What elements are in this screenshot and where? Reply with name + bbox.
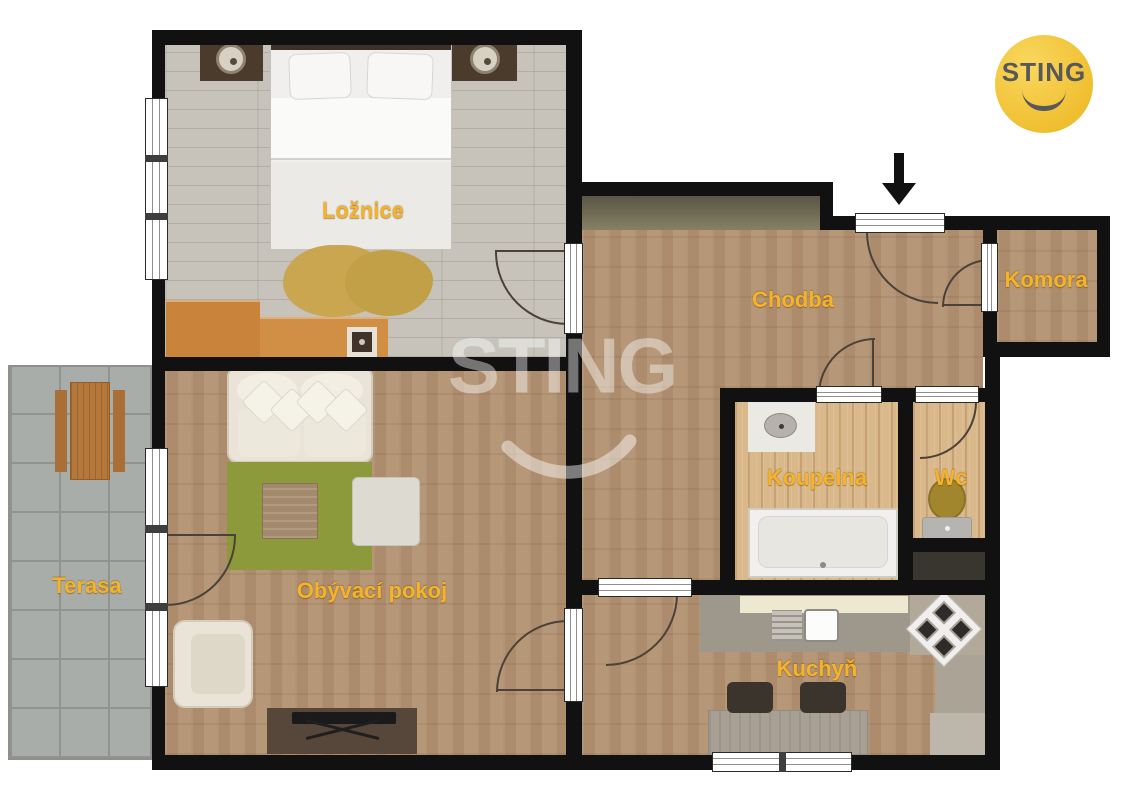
- drain: [820, 562, 826, 568]
- wall: [850, 755, 1000, 770]
- window-mullion: [145, 213, 168, 220]
- room-label-loznice: Ložnice: [322, 198, 404, 224]
- lamp-left: [216, 44, 246, 74]
- wall: [985, 342, 1000, 770]
- kitchen-sink: [804, 609, 839, 642]
- burner: [952, 621, 970, 639]
- wall: [720, 388, 735, 595]
- bathtub-inner: [758, 516, 888, 568]
- bed-pillow-left: [288, 52, 352, 100]
- hallway-wardrobe: [582, 196, 820, 230]
- window-mullion: [779, 752, 786, 772]
- bathroom-door-threshold: [816, 386, 882, 403]
- room-label-wc: Wc: [935, 465, 968, 491]
- door-leaf: [495, 250, 568, 252]
- window-mullion: [145, 525, 168, 533]
- utility-shaft: [910, 552, 985, 580]
- bed-pillow-right: [366, 52, 434, 100]
- kitchen-door-threshold: [598, 578, 692, 597]
- decor-frame: [347, 327, 377, 357]
- wall: [898, 538, 985, 552]
- lamp-center: [230, 58, 237, 65]
- window-mullion: [145, 603, 168, 611]
- bathtub: [748, 508, 898, 578]
- bedroom-window: [145, 98, 168, 280]
- dining-table: [708, 710, 868, 755]
- drain: [779, 424, 784, 429]
- armchair: [173, 620, 253, 708]
- wall: [690, 580, 1000, 595]
- burner: [935, 637, 953, 655]
- washbasin: [764, 413, 797, 438]
- wall: [152, 755, 715, 770]
- living-door-threshold: [564, 608, 583, 702]
- wall: [566, 182, 833, 196]
- room-label-chodba: Chodba: [752, 287, 834, 313]
- wall: [152, 30, 165, 100]
- sting-watermark: STING: [448, 321, 676, 412]
- entry-door-threshold: [855, 213, 945, 233]
- wall: [566, 30, 582, 245]
- sting-logo: STING: [995, 35, 1093, 133]
- room-label-terasa: Terasa: [52, 573, 121, 599]
- decor-frame-dot: [359, 339, 365, 345]
- wall: [820, 196, 833, 230]
- window-mullion: [145, 155, 168, 162]
- terrace-window-door: [145, 448, 168, 687]
- door-leaf: [166, 534, 236, 536]
- wall: [566, 580, 600, 595]
- chair: [800, 682, 846, 713]
- entrance-arrow-icon: [882, 183, 916, 205]
- entrance-arrow-icon: [894, 153, 904, 184]
- terrace-bench: [55, 390, 67, 472]
- burner: [918, 621, 936, 639]
- wall: [152, 30, 582, 45]
- sting-logo-text: STING: [1002, 57, 1086, 88]
- coffee-table: [262, 483, 318, 539]
- door-leaf: [496, 689, 568, 691]
- wall: [983, 342, 1110, 357]
- storage-door-threshold: [981, 243, 998, 312]
- terrace-table: [70, 382, 110, 480]
- wall: [833, 216, 857, 230]
- dresser: [166, 300, 260, 358]
- fridge: [930, 713, 985, 755]
- bed-duvet-fold: [271, 98, 451, 160]
- room-label-obyvaci-pokoj: Obývací pokoj: [297, 578, 447, 604]
- sink-drainer: [772, 610, 802, 641]
- wc-door-threshold: [915, 386, 979, 403]
- burner: [935, 604, 953, 622]
- lamp-center: [484, 58, 491, 65]
- wall: [1097, 216, 1110, 357]
- wall: [943, 216, 1110, 230]
- wall: [152, 685, 165, 760]
- terrace-bench: [113, 390, 125, 472]
- wall: [566, 700, 582, 757]
- watermark-smile-icon: [490, 425, 650, 495]
- room-label-komora: Komora: [1004, 267, 1087, 293]
- smile-icon: [1022, 90, 1066, 111]
- armchair-seat: [191, 634, 245, 694]
- chair: [727, 682, 773, 713]
- room-label-koupelna: Koupelna: [767, 465, 867, 491]
- floor-plan: STING STING Ložnice Chodba Komora Koupel…: [0, 0, 1130, 799]
- flush-button: [945, 526, 950, 531]
- wall: [152, 371, 165, 450]
- lamp-right: [470, 44, 500, 74]
- toilet-tank: [922, 517, 972, 539]
- ottoman: [352, 477, 420, 546]
- room-label-kuchyn: Kuchyň: [777, 656, 858, 682]
- wall: [977, 388, 1000, 402]
